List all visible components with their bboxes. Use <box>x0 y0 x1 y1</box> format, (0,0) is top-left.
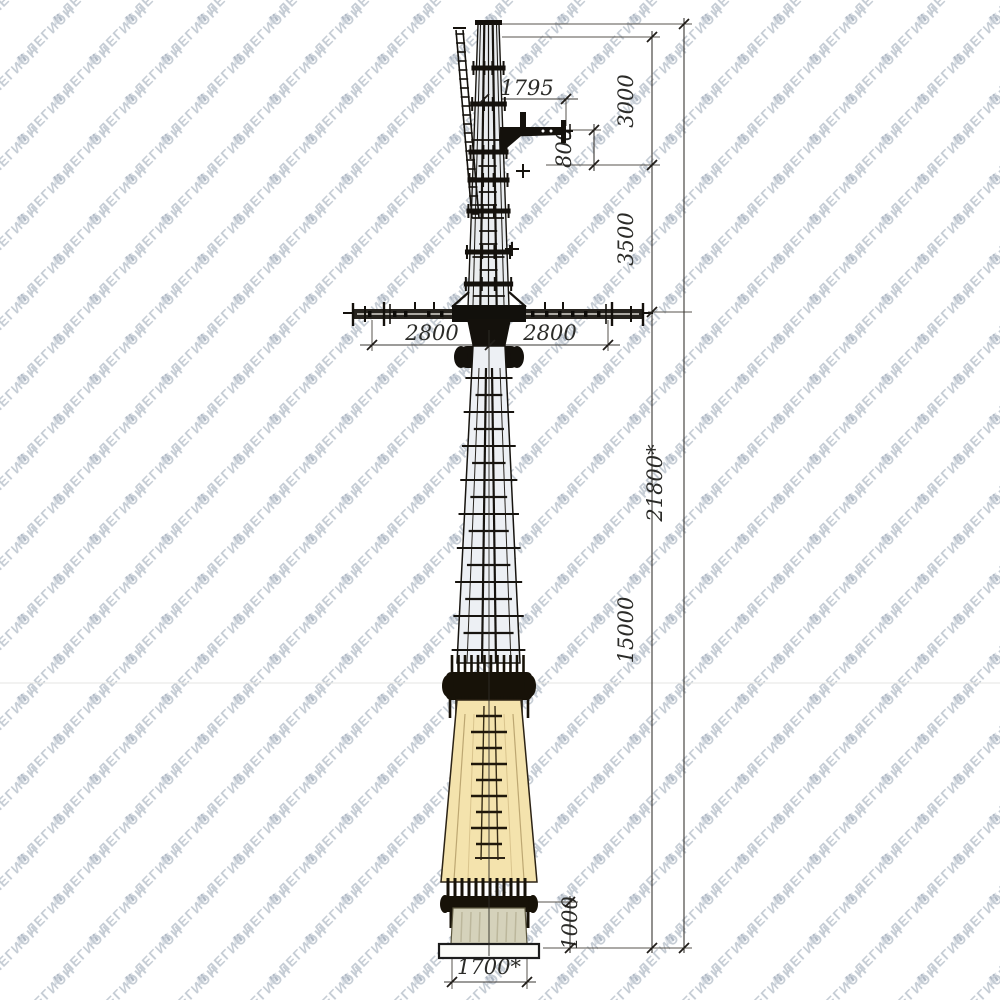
dim-label-3500: 3500 <box>614 212 638 265</box>
dim-label-3000: 3000 <box>614 74 638 127</box>
dim-label-1000: 1000 <box>558 896 582 949</box>
dim-label-15000: 15000 <box>614 597 638 664</box>
drawing-canvas: ЛЕГИОНЛЕГИОНЛЕГИОНЛЕГИОНЛЕГИОНЛЕГИОНЛЕГИ… <box>0 0 1000 1000</box>
pole-elevation-drawing: 1795 3000 800 3500 2800 2800 21800* 1500… <box>0 0 1000 1000</box>
top-mast <box>453 20 530 308</box>
dim-label-2800-right: 2800 <box>522 321 576 345</box>
dim-label-2800-left: 2800 <box>404 321 458 345</box>
dim-label-1795: 1795 <box>500 76 553 100</box>
dim-label-21800: 21800* <box>643 444 667 523</box>
tower <box>343 20 653 958</box>
